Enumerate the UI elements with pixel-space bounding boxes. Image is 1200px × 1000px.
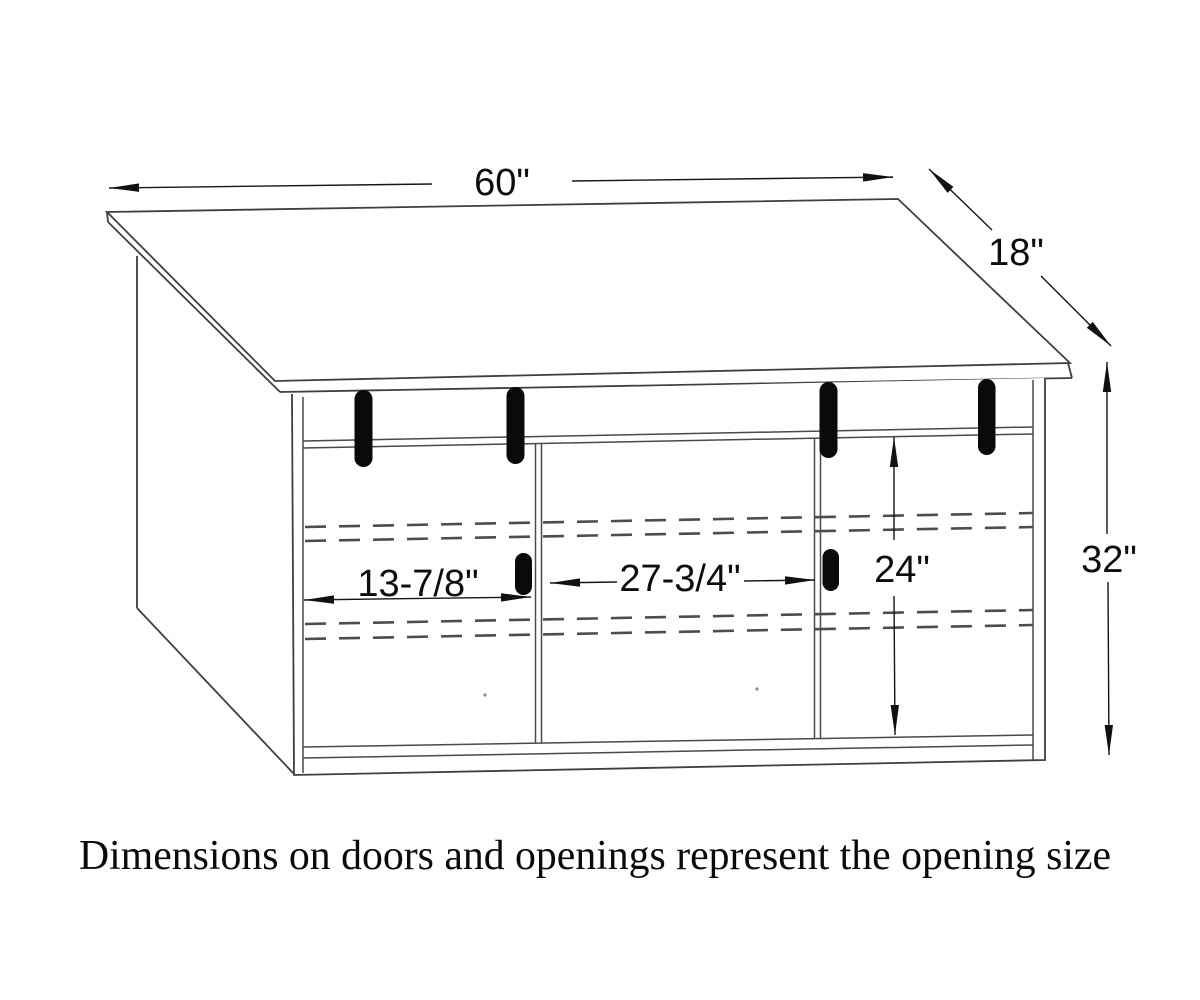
dim-overall-height: 32" [1081, 362, 1137, 755]
dim-label-overall-height: 32" [1081, 539, 1137, 581]
countertop-surface [107, 199, 1070, 381]
dim-label-center-opening-width: 27-3/4" [619, 558, 740, 600]
caption: Dimensions on doors and openings represe… [79, 833, 1111, 879]
door-handle-mid-left [515, 553, 532, 595]
cabinet-dimension-drawing: 60" 18" 32" 24" 13-7/8" 27-3/4" Dimensio… [0, 0, 1200, 1000]
dim-top-width: 60" [109, 162, 893, 204]
door-handle-top-4 [978, 379, 996, 455]
door-handle-top-3 [820, 382, 838, 458]
door-handle-top-1 [355, 390, 373, 467]
countertop-edge-right-cap [1068, 363, 1072, 378]
left-panel-bottom-edge [137, 608, 294, 774]
speck-dot [755, 687, 758, 690]
door-handle-mid-right [823, 549, 840, 591]
drawing-canvas: 60" 18" 32" 24" 13-7/8" 27-3/4" Dimensio… [0, 0, 1200, 1000]
dim-label-depth: 18" [988, 232, 1044, 274]
countertop [107, 199, 1072, 392]
dim-label-opening-height: 24" [874, 549, 930, 591]
countertop-edge-left-cap [107, 212, 108, 222]
door-handle-top-2 [507, 387, 525, 464]
dim-label-left-opening-width: 13-7/8" [357, 563, 478, 605]
speck-dot [483, 693, 486, 696]
dim-label-top-width: 60" [474, 162, 530, 204]
